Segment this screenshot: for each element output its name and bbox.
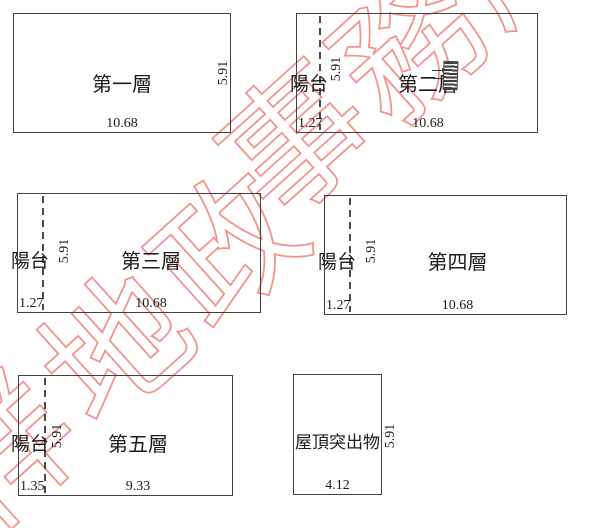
roof-protrusion-width-dimension: 4.12 (294, 478, 381, 494)
floor-4-label: 第四層 (349, 246, 566, 275)
floor-1-width-dimension: 10.68 (14, 116, 230, 132)
right-arrow-icon (432, 70, 442, 71)
roof-protrusion-height-dimension: 5.91 (384, 416, 398, 456)
floor-3-width-dimension: 10.68 (42, 296, 260, 312)
floor-4-width-dimension: 10.68 (349, 298, 566, 314)
floor-4-balcony-width-dimension: 1.27 (326, 298, 351, 314)
floor-5-outline: 陽台 5.91 第五層 1.35 9.33 (18, 375, 233, 496)
floor-1-height-dimension: 5.91 (217, 53, 231, 93)
floor-4-outline: 陽台 5.91 第四層 1.27 10.68 (324, 195, 567, 315)
floor-1-label: 第一層 (14, 68, 230, 97)
right-arrow-icon (433, 78, 443, 79)
seal-stamp-icon (444, 62, 458, 89)
floor-2-outline: 陽台 5.91 第二層 1.27 10.68 (296, 13, 538, 133)
roof-protrusion-outline: 屋頂突出物 4.12 (293, 374, 382, 495)
roof-protrusion-label: 屋頂突出物 (291, 428, 384, 453)
annotation-stamp (431, 61, 461, 93)
floor-plan-drawing: 祥 地 政 事 務 所 第一層 5.91 10.68 陽台 5.91 第二層 1… (0, 0, 600, 528)
floor-3-label: 第三層 (42, 245, 260, 274)
floor-5-balcony-width-dimension: 1.35 (20, 479, 45, 495)
floor-2-width-dimension: 10.68 (319, 116, 537, 132)
floor-2-label: 第二層 (319, 68, 537, 97)
floor-3-outline: 陽台 5.91 第三層 1.27 10.68 (17, 193, 261, 313)
floor-3-balcony-width-dimension: 1.27 (19, 296, 44, 312)
floor-5-width-dimension: 9.33 (44, 479, 232, 495)
floor-5-label: 第五層 (44, 428, 232, 457)
floor-1-outline: 第一層 5.91 10.68 (13, 13, 231, 133)
